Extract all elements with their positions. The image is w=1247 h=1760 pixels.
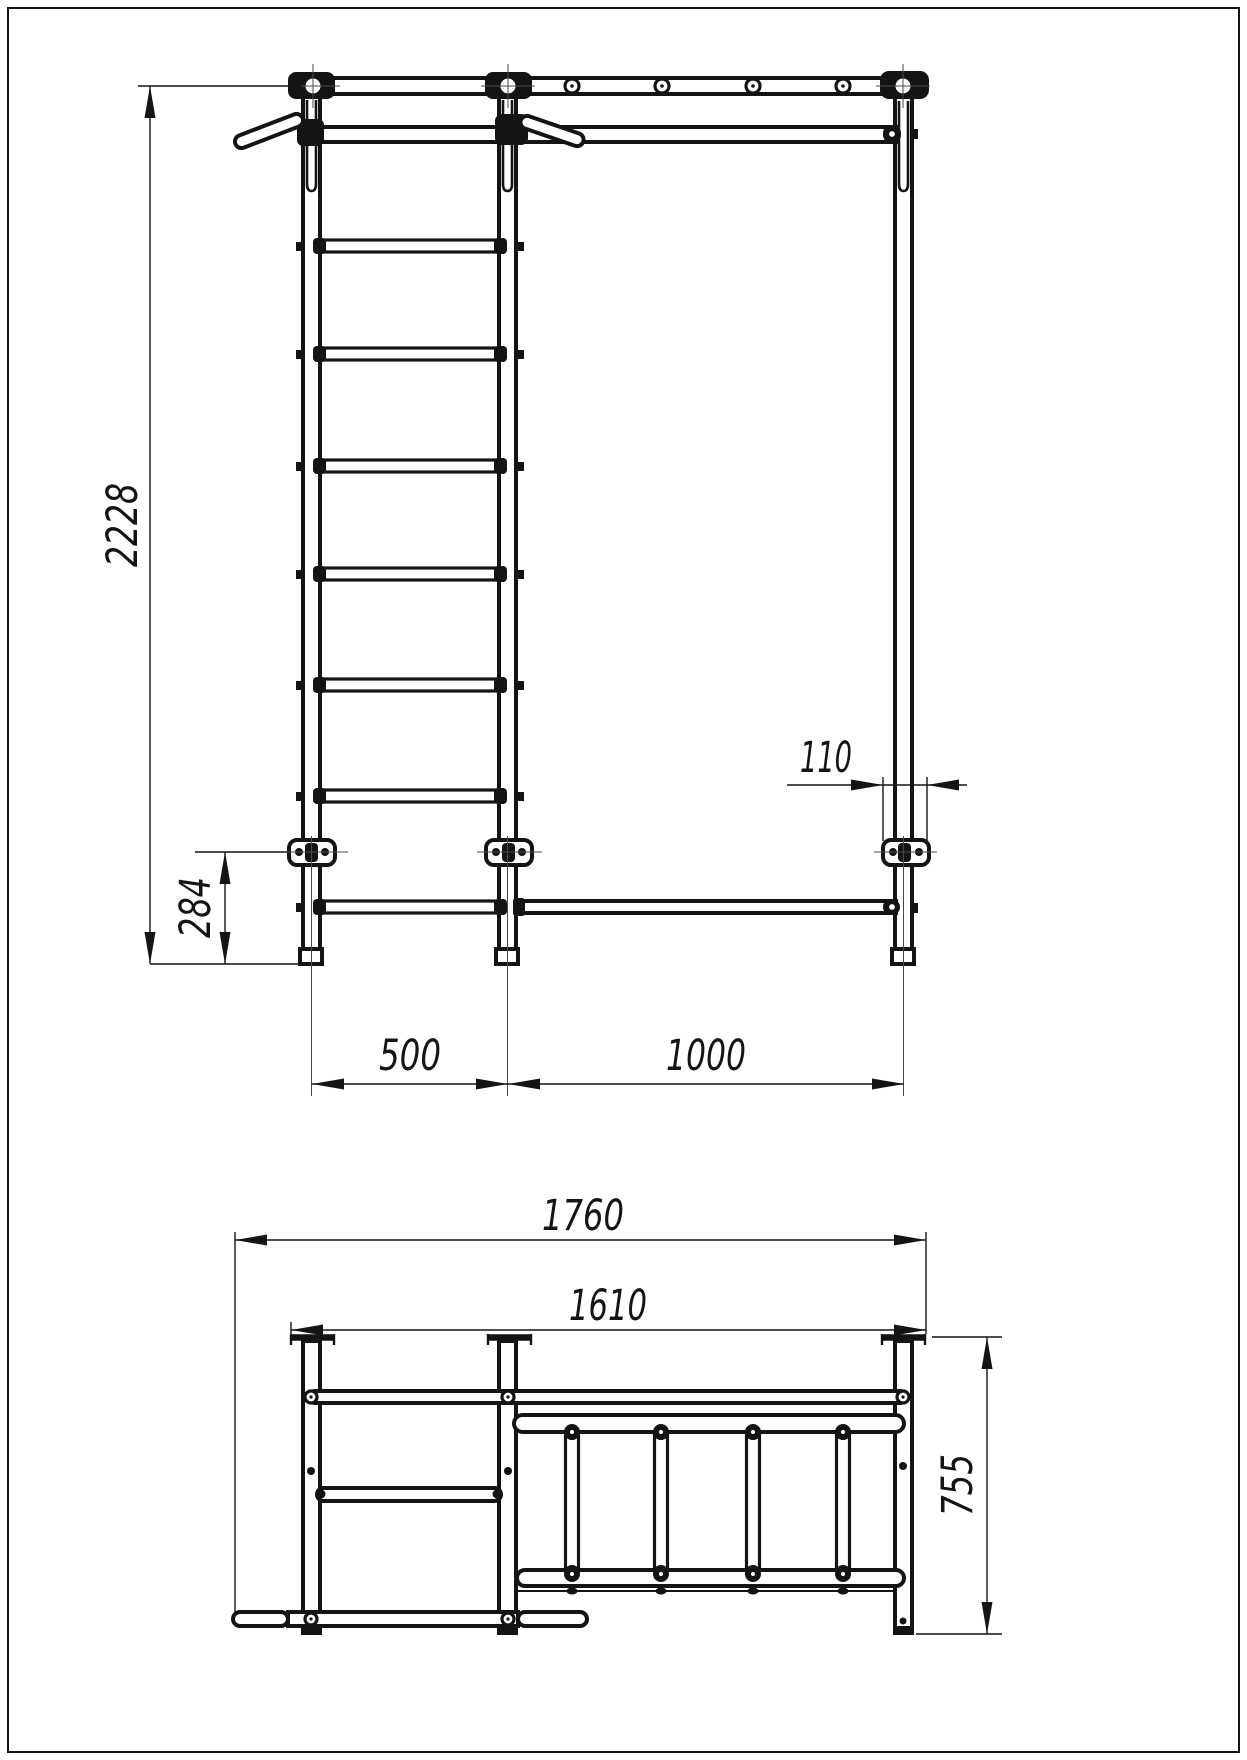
right-post xyxy=(895,97,912,951)
dim-overall-height-label: 2228 xyxy=(98,483,148,567)
left-beam xyxy=(303,1341,320,1633)
drawing-sheet: 2228 284 110 500 1000 xyxy=(0,0,1247,1760)
wall-plates xyxy=(290,1334,926,1345)
dim-left-bay-label: 500 xyxy=(379,1031,441,1081)
dim-overall-length-label: 1760 xyxy=(542,1191,624,1241)
middle-beam-cap xyxy=(498,1626,517,1634)
lower-brace-bar xyxy=(516,901,896,913)
dim-frame-length-label: 1610 xyxy=(569,1281,647,1331)
dim-anchor-height-label: 284 xyxy=(171,877,221,938)
dim-overall-height: 2228 xyxy=(98,86,301,964)
wall-side-rail xyxy=(315,1391,900,1403)
ladder-rungs-plan xyxy=(317,1488,501,1501)
right-beam-cap xyxy=(894,1626,913,1634)
dim-depth: 755 xyxy=(916,1337,1002,1634)
dim-depth-label: 755 xyxy=(933,1454,983,1516)
dim-bay-widths: 500 1000 xyxy=(312,1031,905,1090)
dim-overall-length: 1760 xyxy=(235,1191,926,1246)
top-beam xyxy=(299,78,921,94)
dim-right-bay-label: 1000 xyxy=(666,1031,746,1081)
front-view: 2228 284 110 500 1000 xyxy=(98,64,967,1096)
dim-plate-width-label: 110 xyxy=(800,733,852,783)
left-beam-cap xyxy=(302,1626,321,1634)
right-beam xyxy=(895,1341,912,1633)
dim-plate-width: 110 xyxy=(787,733,967,841)
technical-drawing: 2228 284 110 500 1000 xyxy=(0,0,1247,1760)
middle-beam xyxy=(499,1341,516,1633)
pull-up-bar xyxy=(318,127,898,142)
floor-support-tube xyxy=(233,1612,587,1626)
middle-post xyxy=(499,96,516,951)
left-post xyxy=(303,96,320,951)
wall-anchor-plates xyxy=(289,840,929,865)
dim-frame-length: 1610 xyxy=(291,1281,926,1336)
left-hand-grip xyxy=(233,112,305,150)
top-view: 1760 1610 xyxy=(233,1191,1002,1634)
dim-anchor-height: 284 xyxy=(171,852,287,964)
